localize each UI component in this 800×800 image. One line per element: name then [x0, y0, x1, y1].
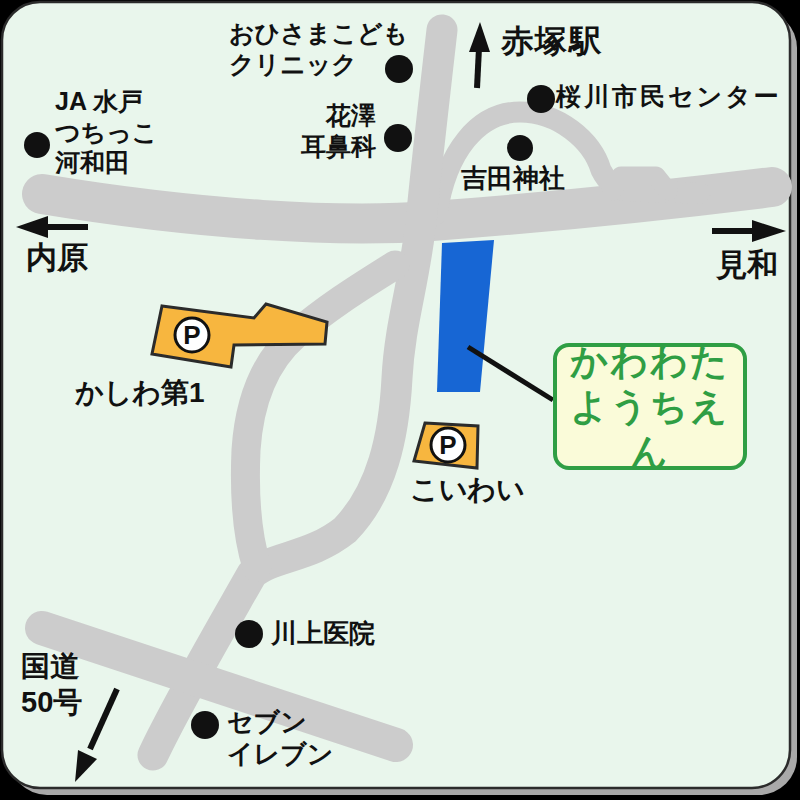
- label-seven-eleven: セブン イレブン: [227, 707, 333, 770]
- dot-seven-eleven: [191, 711, 219, 739]
- label-direction-east: 見和: [716, 246, 778, 284]
- destination-label-box: かわわた ようちえん: [553, 343, 747, 470]
- dot-ja-mito: [24, 132, 50, 158]
- parking-kashiwa-p-letter: P: [183, 320, 200, 350]
- dot-yoshida-shrine: [507, 135, 533, 161]
- label-route50: 国道 50号: [21, 649, 82, 721]
- label-hanazawa: 花澤 耳鼻科: [283, 100, 376, 161]
- label-kawakami-clinic: 川上医院: [271, 618, 375, 650]
- station-arrow-shaft: [477, 48, 479, 88]
- label-parking-kashiwa: かしわ第1: [75, 376, 205, 410]
- label-ja-mito: JA 水戸 つちっこ 河和田: [55, 86, 157, 178]
- label-station: 赤塚駅: [501, 22, 603, 61]
- label-parking-koiwai: こいわい: [410, 473, 525, 507]
- label-direction-west: 内原: [26, 239, 88, 277]
- label-clinic: おひさまこども クリニック: [229, 18, 408, 79]
- label-sakuragawa-center: 桜川市民センター: [556, 81, 782, 112]
- dot-hanazawa: [384, 124, 412, 152]
- dot-kawakami-clinic: [235, 620, 263, 648]
- access-map: P P おひさまこども クリニック 赤塚駅 桜川市民センター JA 水戸 つちっ…: [0, 0, 800, 800]
- destination-name: かわわた ようちえん: [557, 339, 743, 474]
- dot-sakuragawa-center: [527, 85, 555, 113]
- parking-koiwai-p-letter: P: [439, 430, 456, 460]
- label-yoshida-shrine: 吉田神社: [461, 163, 565, 195]
